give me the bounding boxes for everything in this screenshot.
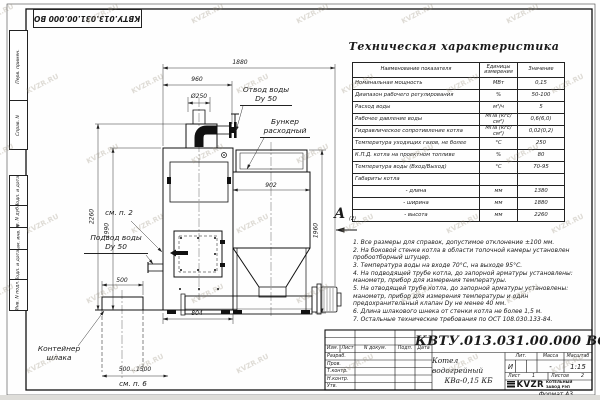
spec-row: Номинальная мощностьМВт0,15 <box>353 78 565 90</box>
tb-scale-value: 1:15 <box>564 363 592 371</box>
motor <box>312 284 341 314</box>
tb-sheet-value: 1 <box>532 374 535 379</box>
dim-902: 902 <box>256 182 286 189</box>
tb-mass-header: Масса <box>537 354 564 359</box>
spec-row: - высотамм2260 <box>353 210 565 222</box>
corner-doc-box: КВТУ.013.031.00.000 ВО <box>33 9 142 28</box>
corner-doc-number: КВТУ.013.031.00.000 ВО <box>34 14 140 23</box>
spec-row: Расход водым³/ч5 <box>353 102 565 114</box>
spec-row: Диапазон рабочего регулирования%50-100 <box>353 90 565 102</box>
kvzr-logo-subtext: КОТЕЛЬНЫЙ ЗАВОД РЭП <box>546 380 572 388</box>
tb-col-data: Дата <box>415 346 432 351</box>
tb-role-prov: Пров. <box>327 362 341 367</box>
tb-scale-header: Масштаб <box>564 354 592 359</box>
tb-role-nkontr: Н.контр. <box>327 377 348 382</box>
tb-lit-header: Лит. <box>505 354 537 359</box>
spec-table-title: Техническая характеристика <box>348 40 560 53</box>
page-edge-shadow <box>0 395 600 400</box>
dim-250: Ø250 <box>184 93 214 100</box>
tb-col-ndoc: N докум. <box>355 346 395 351</box>
note: 7. Остальные технические требования по О… <box>353 316 589 323</box>
technical-notes: 1. Все размеры для справок, допустимое о… <box>353 239 589 324</box>
tb-sheets-label: Листов <box>551 374 569 379</box>
tb-sheet-label: Лист <box>508 374 520 379</box>
margin-stamp: Перв. примен. <box>9 30 28 102</box>
note: 3. Температура воды на входе 70°С, на вы… <box>353 262 589 269</box>
dim-1880: 1880 <box>225 59 255 66</box>
label-water-outlet: Отвод воды Dy 50 <box>240 85 292 106</box>
dim-500: 500 <box>107 277 137 284</box>
note: 2. На боковой стенке котла в области топ… <box>353 247 589 262</box>
dim-960: 960 <box>182 76 212 83</box>
tb-col-list: Лист <box>340 346 355 351</box>
kvzr-logo-text: KVZR <box>517 380 544 390</box>
label-water-inlet: Подвод воды Dy 50 <box>84 233 148 254</box>
drawing-sheet: КВТУ.013.031.00.000 ВО Перв. примен. Спр… <box>0 0 600 400</box>
label-fuel-bunker: Бункер расходный <box>260 117 310 138</box>
label-slag-container: Контейнер шлака <box>30 344 88 363</box>
spec-row: К.П.Д. котла на проектном топливе%80 <box>353 150 565 162</box>
spec-row: Температура воды (Вход/Выход)°С70-95 <box>353 162 565 174</box>
margin-stamp: Взам. инв. N <box>9 227 28 251</box>
view-a-marker: А <box>334 206 345 222</box>
note: 1. Все размеры для справок, допустимое о… <box>353 239 589 246</box>
dim-804: 804 <box>182 310 212 317</box>
margin-stamp: Подп. и дата <box>9 249 28 281</box>
spec-header-row: Наименование показателя Единицы измерени… <box>353 63 565 78</box>
fuel-bunker <box>233 150 310 314</box>
tb-mass-value: - <box>537 363 564 371</box>
spec-row: Температура уходящих газов, не более°С25… <box>353 138 565 150</box>
chimney-outlet <box>186 110 239 148</box>
dim-1960: 1960 <box>313 219 320 243</box>
tb-lit-value: И <box>505 363 516 371</box>
tb-role-tkontr: Т.контр. <box>327 369 348 374</box>
dimension-lines <box>95 64 335 376</box>
tb-col-podp: Подп. <box>395 346 415 351</box>
tb-role-razrab: Разраб. <box>327 354 346 359</box>
tb-col-izm: Изм. <box>325 346 340 351</box>
spec-row: Гидравлическое сопротивление котлаМПа (к… <box>353 126 565 138</box>
dim-500-1500: 500...1500 <box>105 366 165 373</box>
spec-row: - ширинамм1880 <box>353 198 565 210</box>
titleblock-doc-number: КВТУ.013.031.00.000 ВО <box>432 330 592 352</box>
margin-stamp: Инв. N подл. <box>9 279 28 311</box>
dim-2260: 2260 <box>89 205 96 229</box>
note: 4. На подводящей трубе котла, до запорно… <box>353 270 589 285</box>
margin-stamp: Справ. N <box>9 100 28 150</box>
kvzr-logo: KVZR КОТЕЛЬНЫЙ ЗАВОД РЭП <box>507 380 591 389</box>
tb-role-utv: Утв. <box>327 384 337 389</box>
spec-row: Габариты котла <box>353 174 565 186</box>
note: 5. На отводящей трубе котла, до запорной… <box>353 285 589 307</box>
kvzr-logo-mark <box>507 381 515 388</box>
tb-sheets-value: 2 <box>581 374 584 379</box>
note: 6. Длина шлакового шнека от стенки котла… <box>353 308 589 315</box>
spec-row: Рабочее давление водыМПа (кгс/см²)0,6(6,… <box>353 114 565 126</box>
spec-table: Наименование показателя Единицы измерени… <box>352 62 565 222</box>
spec-row: - длинамм1380 <box>353 186 565 198</box>
note-ref-2: см. п. 2 <box>96 208 142 217</box>
furnace-door <box>170 231 225 290</box>
note-ref-6: см. п. 6 <box>103 379 163 388</box>
titleblock-product-name: Котел водогрейный КВа-0,15 КБ <box>432 354 505 388</box>
